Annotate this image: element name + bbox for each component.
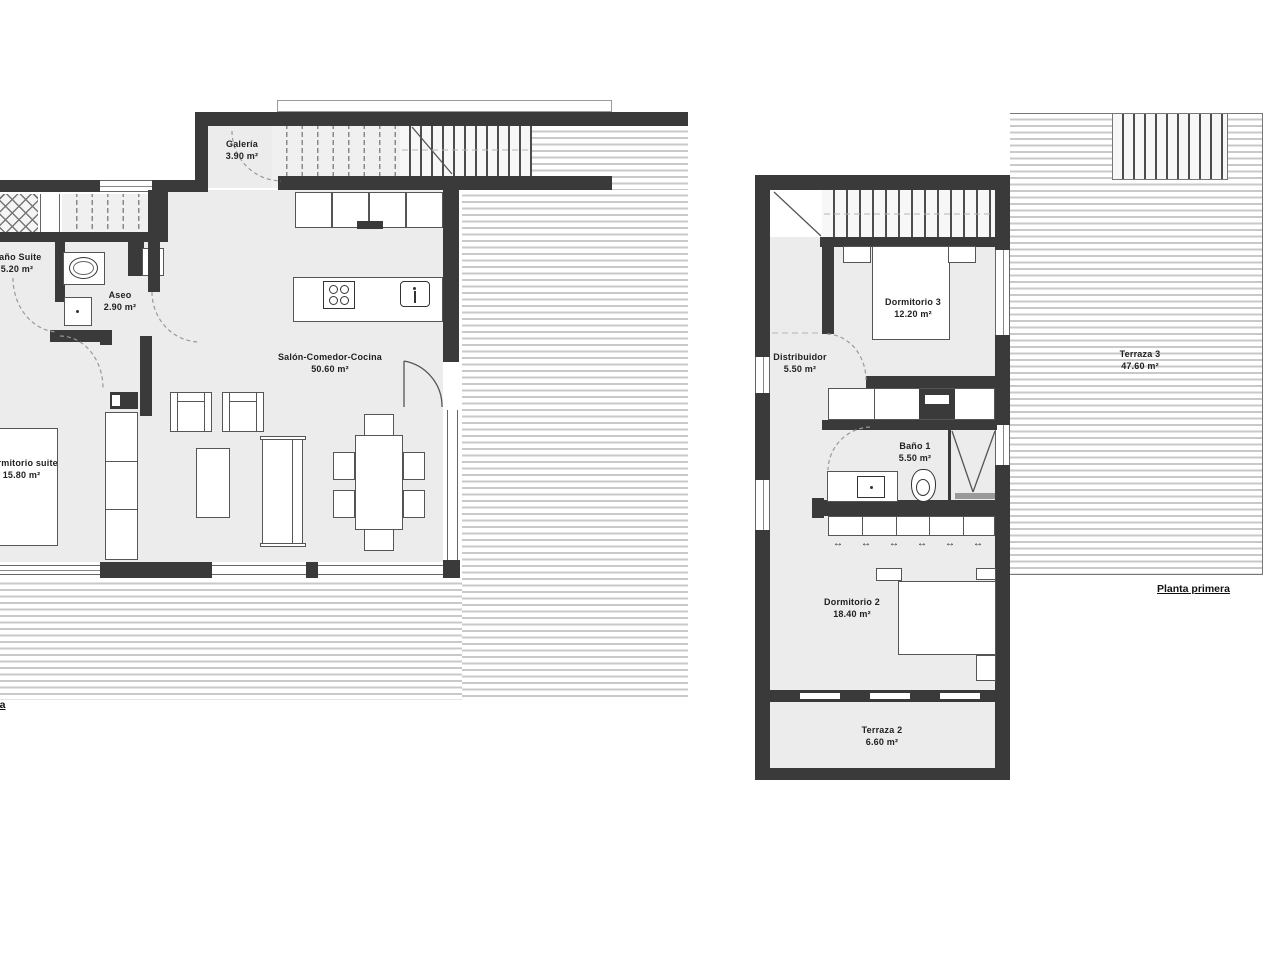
room-name: Aseo <box>94 290 146 302</box>
plan-title-planta-baja: Planta baja <box>0 699 14 712</box>
terrace-glass-door <box>995 250 1010 335</box>
wall-segment <box>306 562 318 578</box>
wall-segment <box>148 190 160 292</box>
wall-segment <box>995 175 1010 575</box>
room-area: 5.50 m² <box>758 364 842 376</box>
sliding-door-arrow-icon: ↔ <box>945 539 955 549</box>
sofa <box>262 438 303 545</box>
basin-inner-ring <box>73 261 94 275</box>
nightstand <box>843 246 871 263</box>
sliding-glass-slot <box>870 693 910 699</box>
wall-segment <box>195 112 688 126</box>
closet-row <box>828 388 995 420</box>
wall-segment <box>812 498 824 518</box>
room-name: Salón-Comedor-Cocina <box>268 352 392 364</box>
sliding-door-arrow-icon: ↔ <box>889 539 899 549</box>
terrace-deck <box>1010 113 1263 575</box>
sliding-glass-slot <box>800 693 840 699</box>
nightstand <box>876 568 902 581</box>
window <box>318 565 455 575</box>
sink-icon <box>857 476 885 498</box>
basin-icon <box>69 257 98 279</box>
room-name: Galería <box>212 139 272 151</box>
bed <box>0 428 58 546</box>
nightstand <box>976 655 996 681</box>
wall-segment <box>755 768 1010 780</box>
room-label-dormitorio-suite: Dormitorio suite 15.80 m² <box>0 458 84 481</box>
stairs <box>400 126 532 176</box>
room-name: Baño 1 <box>879 441 951 453</box>
parapet <box>277 100 612 112</box>
room-area: 18.40 m² <box>804 609 900 621</box>
window <box>755 480 770 530</box>
wall-segment <box>100 330 112 345</box>
wall-segment <box>100 562 212 578</box>
cabinet-handle <box>357 221 383 229</box>
room-label-terraza-3: Terraza 3 47.60 m² <box>1083 349 1197 372</box>
appliance-slot <box>925 395 949 404</box>
dining-chair <box>333 452 355 480</box>
room-name: Dormitorio suite <box>0 458 84 470</box>
wall-segment <box>140 336 152 416</box>
wall-segment <box>822 500 997 516</box>
dining-table <box>355 435 403 530</box>
room-area: 5.50 m² <box>879 453 951 465</box>
wall-segment <box>822 247 834 334</box>
armchair <box>222 392 264 432</box>
room-area: 15.80 m² <box>0 470 84 482</box>
roof-slats <box>1112 113 1228 180</box>
sliding-door-arrow-icon: ↔ <box>973 539 983 549</box>
glass-wall <box>447 410 458 564</box>
window <box>995 425 1010 465</box>
room-name: Dormitorio 3 <box>858 297 968 309</box>
room-label-aseo: Aseo 2.90 m² <box>94 290 146 313</box>
kitchen-sink-icon <box>400 281 430 307</box>
room-label-salon: Salón-Comedor-Cocina 50.60 m² <box>268 352 392 375</box>
dining-chair <box>364 414 394 436</box>
sink-icon <box>64 297 92 326</box>
wall-segment <box>443 190 459 362</box>
sliding-door-arrow-icon: ↔ <box>917 539 927 549</box>
room-label-bano-1: Baño 1 5.50 m² <box>879 441 951 464</box>
room-name: Baño Suite <box>0 252 71 264</box>
sliding-door-arrow-icon: ↔ <box>861 539 871 549</box>
deck-area <box>462 190 688 700</box>
shower-tray <box>955 493 995 499</box>
deck-area <box>0 578 462 700</box>
coffee-table <box>196 448 230 518</box>
sliding-door-arrow-icon: ↔ <box>833 539 843 549</box>
armchair <box>170 392 212 432</box>
room-label-bano-suite: Baño Suite 5.20 m² <box>0 252 71 275</box>
sliding-wardrobe <box>828 516 995 536</box>
room-name: Terraza 2 <box>834 725 930 737</box>
sliding-glass-slot <box>940 693 980 699</box>
cabinet-cell <box>295 192 332 228</box>
room-area: 3.90 m² <box>212 151 272 163</box>
room-area: 50.60 m² <box>268 364 392 376</box>
wall-segment <box>866 376 997 388</box>
window <box>100 180 152 192</box>
dining-chair <box>403 490 425 518</box>
nightstand <box>976 568 996 580</box>
room-label-dormitorio-2: Dormitorio 2 18.40 m² <box>804 597 900 620</box>
wall-segment <box>278 176 612 190</box>
hob-icon <box>323 281 355 309</box>
closet-column-slot <box>112 395 120 406</box>
bed <box>872 246 950 340</box>
dining-chair <box>403 452 425 480</box>
toilet-icon <box>911 469 936 502</box>
room-label-distribuidor: Distribuidor 5.50 m² <box>758 352 842 375</box>
nightstand <box>948 246 976 263</box>
room-area: 5.20 m² <box>0 264 71 276</box>
room-name: Distribuidor <box>758 352 842 364</box>
cabinet-cell <box>406 192 443 228</box>
room-area: 47.60 m² <box>1083 361 1197 373</box>
room-label-terraza-2: Terraza 2 6.60 m² <box>834 725 930 748</box>
floor-plan-canvas: ↔ ↔ ↔ ↔ ↔ ↔ Baño Suite 5.20 m² Aseo 2.90… <box>0 0 1280 960</box>
wall-segment <box>755 175 1010 190</box>
room-area: 6.60 m² <box>834 737 930 749</box>
room-name: Terraza 3 <box>1083 349 1197 361</box>
room-area: 12.20 m² <box>858 309 968 321</box>
room-label-galeria: Galería 3.90 m² <box>212 139 272 162</box>
room-name: Dormitorio 2 <box>804 597 900 609</box>
stair-landing <box>770 190 822 237</box>
room-area: 2.90 m² <box>94 302 146 314</box>
stairs <box>822 190 995 237</box>
wardrobe <box>105 412 138 560</box>
dining-chair <box>333 490 355 518</box>
wall-segment <box>755 175 770 780</box>
shower-partition <box>948 428 951 502</box>
bed <box>898 581 996 655</box>
plan-title-planta-primera: Planta primera <box>1157 583 1230 596</box>
wall-segment <box>443 560 460 578</box>
window <box>212 565 306 575</box>
wall-segment <box>995 575 1010 772</box>
window <box>0 565 100 575</box>
room-label-dormitorio-3: Dormitorio 3 12.20 m² <box>858 297 968 320</box>
dining-chair <box>364 529 394 551</box>
appliance <box>919 389 955 419</box>
wall-segment <box>822 420 997 430</box>
